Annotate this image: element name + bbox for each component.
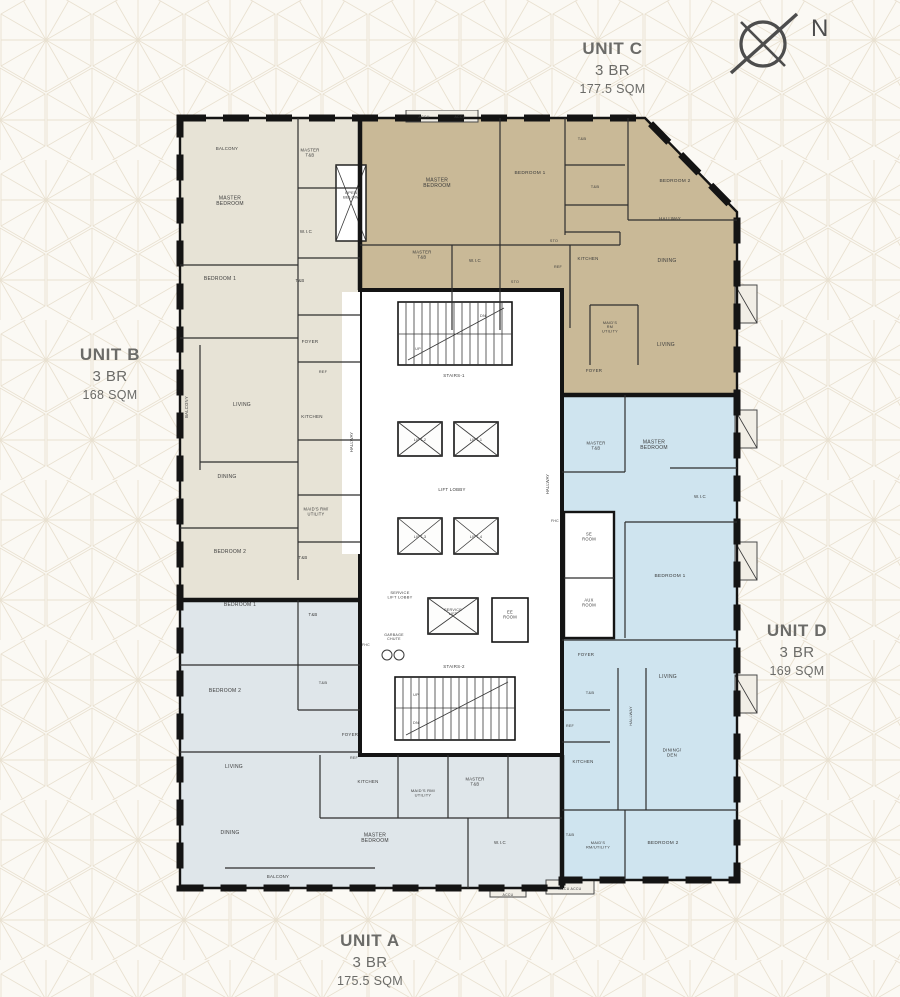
unit-c-name: UNIT C — [535, 38, 690, 61]
unit-b-name: UNIT B — [30, 344, 190, 367]
room-label: STAIRS-2 — [443, 664, 465, 669]
room-label: BEDROOM 2 — [659, 178, 690, 184]
room-label: BALCONY — [267, 874, 289, 879]
room-label: T&B — [578, 136, 587, 141]
compass: N — [695, 3, 845, 87]
room-label: KITCHEN — [577, 256, 598, 261]
room-label: MASTERBEDROOM — [423, 177, 451, 189]
room-label: ACCU — [454, 115, 465, 119]
room-label: LIVING — [657, 342, 675, 348]
room-label: UP — [413, 693, 419, 697]
room-label: BEDROOM 2 — [214, 549, 246, 555]
room-label: FHC — [551, 519, 559, 523]
unit-a-bedrooms: 3 BR — [290, 953, 450, 973]
room-label: W.I.C — [469, 258, 481, 263]
room-label: BEDROOM 1 — [514, 170, 545, 176]
room-label: ACCU — [418, 115, 429, 119]
room-label: FOYER — [586, 368, 602, 373]
room-label: ACCU — [503, 893, 514, 897]
room-label: W.I.C — [694, 494, 706, 499]
room-label: LIVING — [233, 402, 251, 408]
room-label: BEDROOM 1 — [224, 602, 256, 608]
unit-a-title: UNIT A 3 BR 175.5 SQM — [290, 930, 450, 990]
room-label: T&B — [586, 690, 595, 695]
room-label: DINING — [658, 258, 677, 264]
room-label: ACCU ACCU — [559, 887, 582, 891]
room-label: REF — [319, 370, 328, 374]
room-label: UP — [415, 347, 421, 351]
room-label: FOYER — [342, 732, 358, 737]
room-label: LIVING — [659, 674, 677, 680]
room-label: BALCONY — [216, 146, 238, 151]
room-label: DINING — [221, 830, 240, 836]
room-label: STO — [550, 239, 558, 243]
room-label: OPENBELOW — [343, 190, 359, 200]
room-label: HALLWAY — [349, 432, 354, 453]
room-label: STO — [511, 280, 519, 284]
room-label: LIFT-1 — [470, 438, 482, 442]
unit-a-name: UNIT A — [290, 930, 450, 953]
stairs-1 — [398, 302, 512, 365]
room-label: T&B — [296, 278, 305, 283]
room-label: W.I.C — [494, 840, 506, 845]
hallway-strip — [342, 292, 360, 554]
ee-room-box — [492, 598, 528, 642]
room-label: LIVING — [225, 764, 243, 770]
unit-b-area: 168 SQM — [30, 387, 190, 404]
room-label: MASTERBEDROOM — [361, 832, 389, 844]
room-label: HALLWAY — [545, 474, 550, 495]
compass-rose-icon — [731, 14, 797, 73]
room-label: FOYER — [578, 652, 594, 657]
floor-plan-svg: BALCONYMASTERBEDROOMMASTERT&BW.I.CBEDROO… — [170, 110, 760, 898]
room-label: LIFT-4 — [470, 535, 482, 539]
room-label: STAIRS-1 — [443, 373, 465, 378]
room-label: DN — [480, 314, 486, 318]
room-label: DINING — [218, 474, 237, 480]
stairs-2 — [395, 677, 515, 740]
room-label: REF — [566, 724, 575, 728]
room-label: FOYER — [302, 339, 319, 344]
room-label: KITCHEN — [357, 779, 378, 784]
room-label: T&B — [309, 612, 318, 617]
room-label: SERVICELIFT LOBBY — [387, 590, 412, 600]
room-label: FHC — [362, 643, 370, 647]
room-label: BEDROOM 2 — [647, 840, 678, 846]
room-label: LIFT LOBBY — [438, 487, 465, 492]
room-label: BEDROOM 2 — [209, 688, 241, 694]
unit-a-area: 175.5 SQM — [290, 973, 450, 990]
room-label: DN — [413, 721, 419, 725]
room-label: REF — [554, 265, 563, 269]
room-label: KITCHEN — [572, 759, 593, 764]
room-label: T&B — [566, 832, 575, 837]
compass-north-label: N — [811, 15, 828, 42]
room-label: W.I.C — [300, 229, 313, 234]
room-label: REF — [350, 756, 359, 760]
room-label: MASTERBEDROOM — [216, 195, 244, 207]
room-label: HALLWAY — [628, 706, 633, 726]
room-label: T&B — [299, 555, 308, 560]
unit-c-title: UNIT C 3 BR 177.5 SQM — [535, 38, 690, 98]
unit-d-title: UNIT D 3 BR 169 SQM — [723, 620, 871, 680]
unit-c-bedrooms: 3 BR — [535, 61, 690, 81]
room-label: BEDROOM 1 — [654, 573, 685, 579]
room-label: T&B — [591, 184, 600, 189]
room-label: T&B — [319, 680, 328, 685]
floor-plan: BALCONYMASTERBEDROOMMASTERT&BW.I.CBEDROO… — [170, 110, 760, 903]
room-label: BEDROOM 1 — [204, 276, 236, 282]
room-label: HALLWAY — [659, 216, 681, 221]
unit-d-bedrooms: 3 BR — [723, 643, 871, 663]
room-label: LIFT-2 — [414, 438, 426, 442]
room-label: LIFT-3 — [414, 535, 426, 539]
unit-b-title: UNIT B 3 BR 168 SQM — [30, 344, 190, 404]
unit-d-area: 169 SQM — [723, 663, 871, 680]
room-label: MASTERBEDROOM — [640, 439, 668, 451]
unit-b-bedrooms: 3 BR — [30, 367, 190, 387]
unit-d-name: UNIT D — [723, 620, 871, 643]
room-label: KITCHEN — [301, 414, 323, 419]
unit-c-area: 177.5 SQM — [535, 81, 690, 98]
